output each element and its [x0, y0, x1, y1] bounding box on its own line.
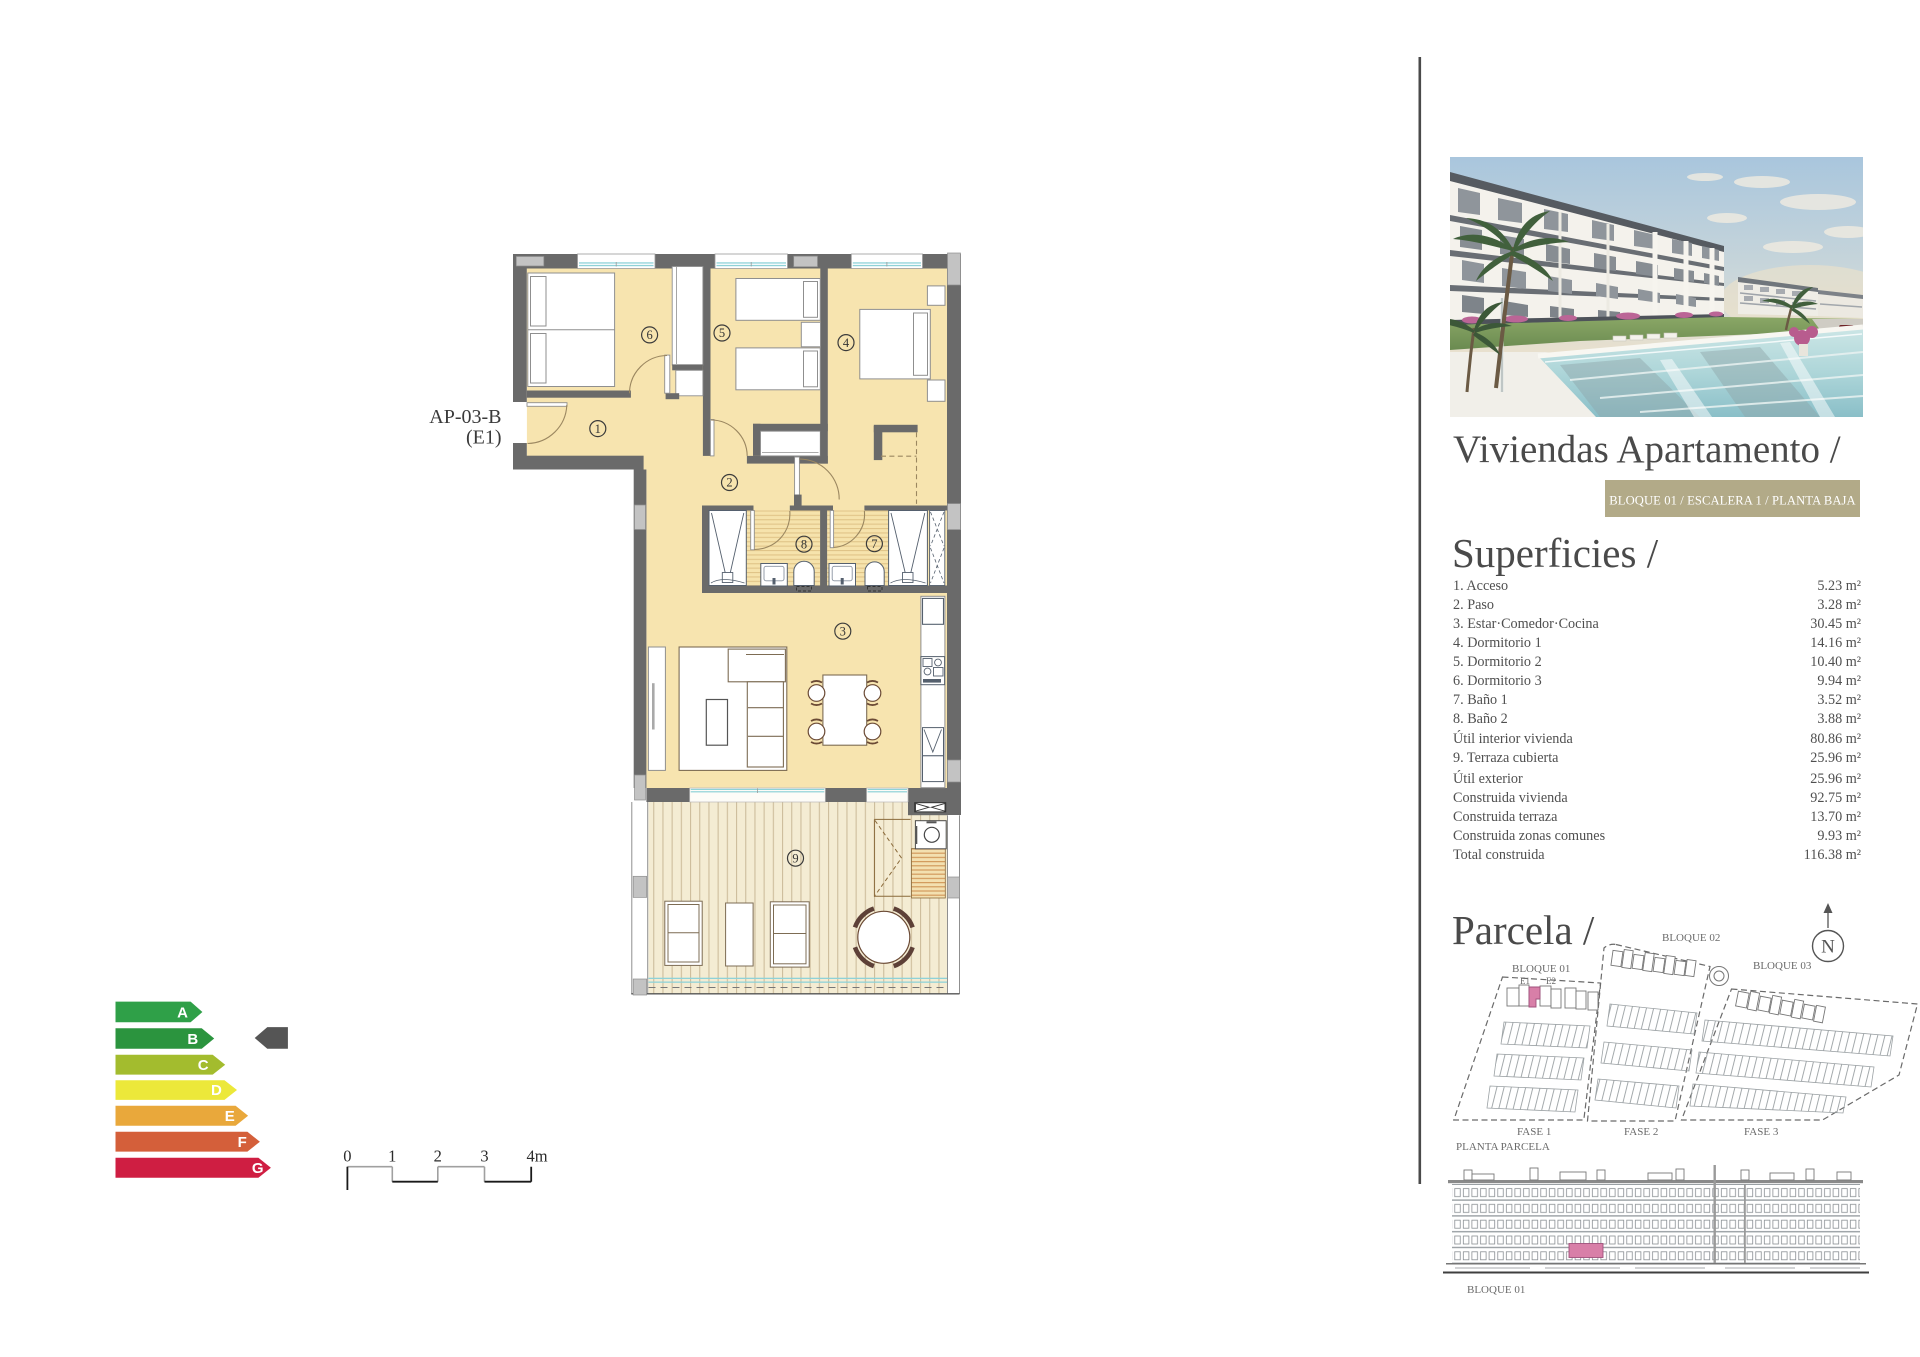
svg-text:6: 6: [646, 328, 652, 342]
svg-text:3: 3: [840, 624, 846, 638]
svg-text:4m: 4m: [526, 1147, 547, 1166]
svg-text:116.38 m²: 116.38 m²: [1804, 847, 1861, 863]
svg-text:8. Baño 2: 8. Baño 2: [1453, 711, 1508, 727]
svg-text:BLOQUE 02: BLOQUE 02: [1662, 932, 1720, 944]
svg-text:Construida terraza: Construida terraza: [1453, 809, 1558, 825]
svg-text:6. Dormitorio 3: 6. Dormitorio 3: [1453, 673, 1542, 689]
svg-text:25.96 m²: 25.96 m²: [1810, 750, 1861, 766]
svg-text:1. Acceso: 1. Acceso: [1453, 578, 1508, 594]
svg-text:4. Dormitorio 1: 4. Dormitorio 1: [1453, 635, 1542, 651]
svg-text:E1: E1: [1520, 976, 1530, 986]
svg-text:4: 4: [843, 336, 850, 350]
svg-text:1: 1: [595, 422, 601, 436]
svg-text:30.45 m²: 30.45 m²: [1810, 616, 1861, 632]
svg-text:FASE 2: FASE 2: [1624, 1126, 1658, 1138]
svg-text:14.16 m²: 14.16 m²: [1810, 635, 1861, 651]
svg-text:FASE 3: FASE 3: [1744, 1126, 1779, 1138]
svg-text:8: 8: [801, 537, 807, 551]
svg-text:E2: E2: [1546, 976, 1556, 986]
svg-text:Superficies /: Superficies /: [1452, 530, 1659, 576]
svg-text:9. Terraza cubierta: 9. Terraza cubierta: [1453, 750, 1559, 766]
svg-text:3: 3: [480, 1147, 488, 1166]
svg-text:80.86 m²: 80.86 m²: [1810, 731, 1861, 747]
svg-text:BLOQUE 01 / ESCALERA 1 / PLANT: BLOQUE 01 / ESCALERA 1 / PLANTA BAJA: [1609, 494, 1855, 508]
svg-text:Total construida: Total construida: [1453, 847, 1545, 863]
svg-text:BLOQUE 03: BLOQUE 03: [1753, 960, 1812, 972]
svg-text:(E1): (E1): [466, 427, 502, 449]
svg-text:BLOQUE 01: BLOQUE 01: [1512, 963, 1570, 975]
svg-text:G: G: [252, 1160, 264, 1177]
svg-text:10.40 m²: 10.40 m²: [1810, 654, 1861, 670]
svg-text:E: E: [225, 1108, 235, 1125]
svg-text:2: 2: [434, 1147, 442, 1166]
svg-text:Construida vivienda: Construida vivienda: [1453, 790, 1568, 806]
svg-text:5. Dormitorio 2: 5. Dormitorio 2: [1453, 654, 1542, 670]
svg-text:Útil exterior: Útil exterior: [1453, 770, 1523, 787]
svg-text:Útil interior vivienda: Útil interior vivienda: [1453, 730, 1573, 747]
svg-text:3.88 m²: 3.88 m²: [1817, 711, 1861, 727]
svg-text:3.52 m²: 3.52 m²: [1817, 692, 1861, 708]
svg-text:1: 1: [388, 1147, 396, 1166]
svg-text:Construida zonas comunes: Construida zonas comunes: [1453, 828, 1606, 844]
svg-text:Parcela /: Parcela /: [1452, 907, 1595, 953]
svg-text:92.75 m²: 92.75 m²: [1810, 790, 1861, 806]
svg-text:7: 7: [871, 537, 877, 551]
svg-text:Viviendas Apartamento /: Viviendas Apartamento /: [1453, 428, 1841, 471]
svg-text:FASE 1: FASE 1: [1517, 1126, 1551, 1138]
svg-text:AP-03-B: AP-03-B: [429, 406, 501, 428]
svg-text:BLOQUE 01: BLOQUE 01: [1467, 1284, 1525, 1296]
svg-text:2: 2: [726, 476, 732, 490]
svg-text:PLANTA PARCELA: PLANTA PARCELA: [1456, 1141, 1550, 1153]
svg-text:7. Baño 1: 7. Baño 1: [1453, 692, 1508, 708]
svg-text:3. Estar·Comedor·Cocina: 3. Estar·Comedor·Cocina: [1453, 616, 1599, 632]
svg-text:C: C: [198, 1057, 209, 1074]
svg-text:25.96 m²: 25.96 m²: [1810, 771, 1861, 787]
svg-text:B: B: [187, 1031, 198, 1048]
svg-text:9: 9: [792, 851, 798, 865]
svg-text:0: 0: [343, 1147, 351, 1166]
svg-text:D: D: [211, 1082, 222, 1099]
svg-text:2. Paso: 2. Paso: [1453, 597, 1494, 613]
svg-text:5: 5: [719, 326, 725, 340]
svg-text:9.94 m²: 9.94 m²: [1817, 673, 1861, 689]
svg-text:F: F: [238, 1134, 247, 1151]
svg-text:A: A: [177, 1005, 188, 1022]
svg-text:9.93 m²: 9.93 m²: [1817, 828, 1861, 844]
svg-text:13.70 m²: 13.70 m²: [1810, 809, 1861, 825]
svg-text:N: N: [1821, 937, 1835, 958]
svg-text:3.28 m²: 3.28 m²: [1817, 597, 1861, 613]
svg-text:5.23 m²: 5.23 m²: [1817, 578, 1861, 594]
